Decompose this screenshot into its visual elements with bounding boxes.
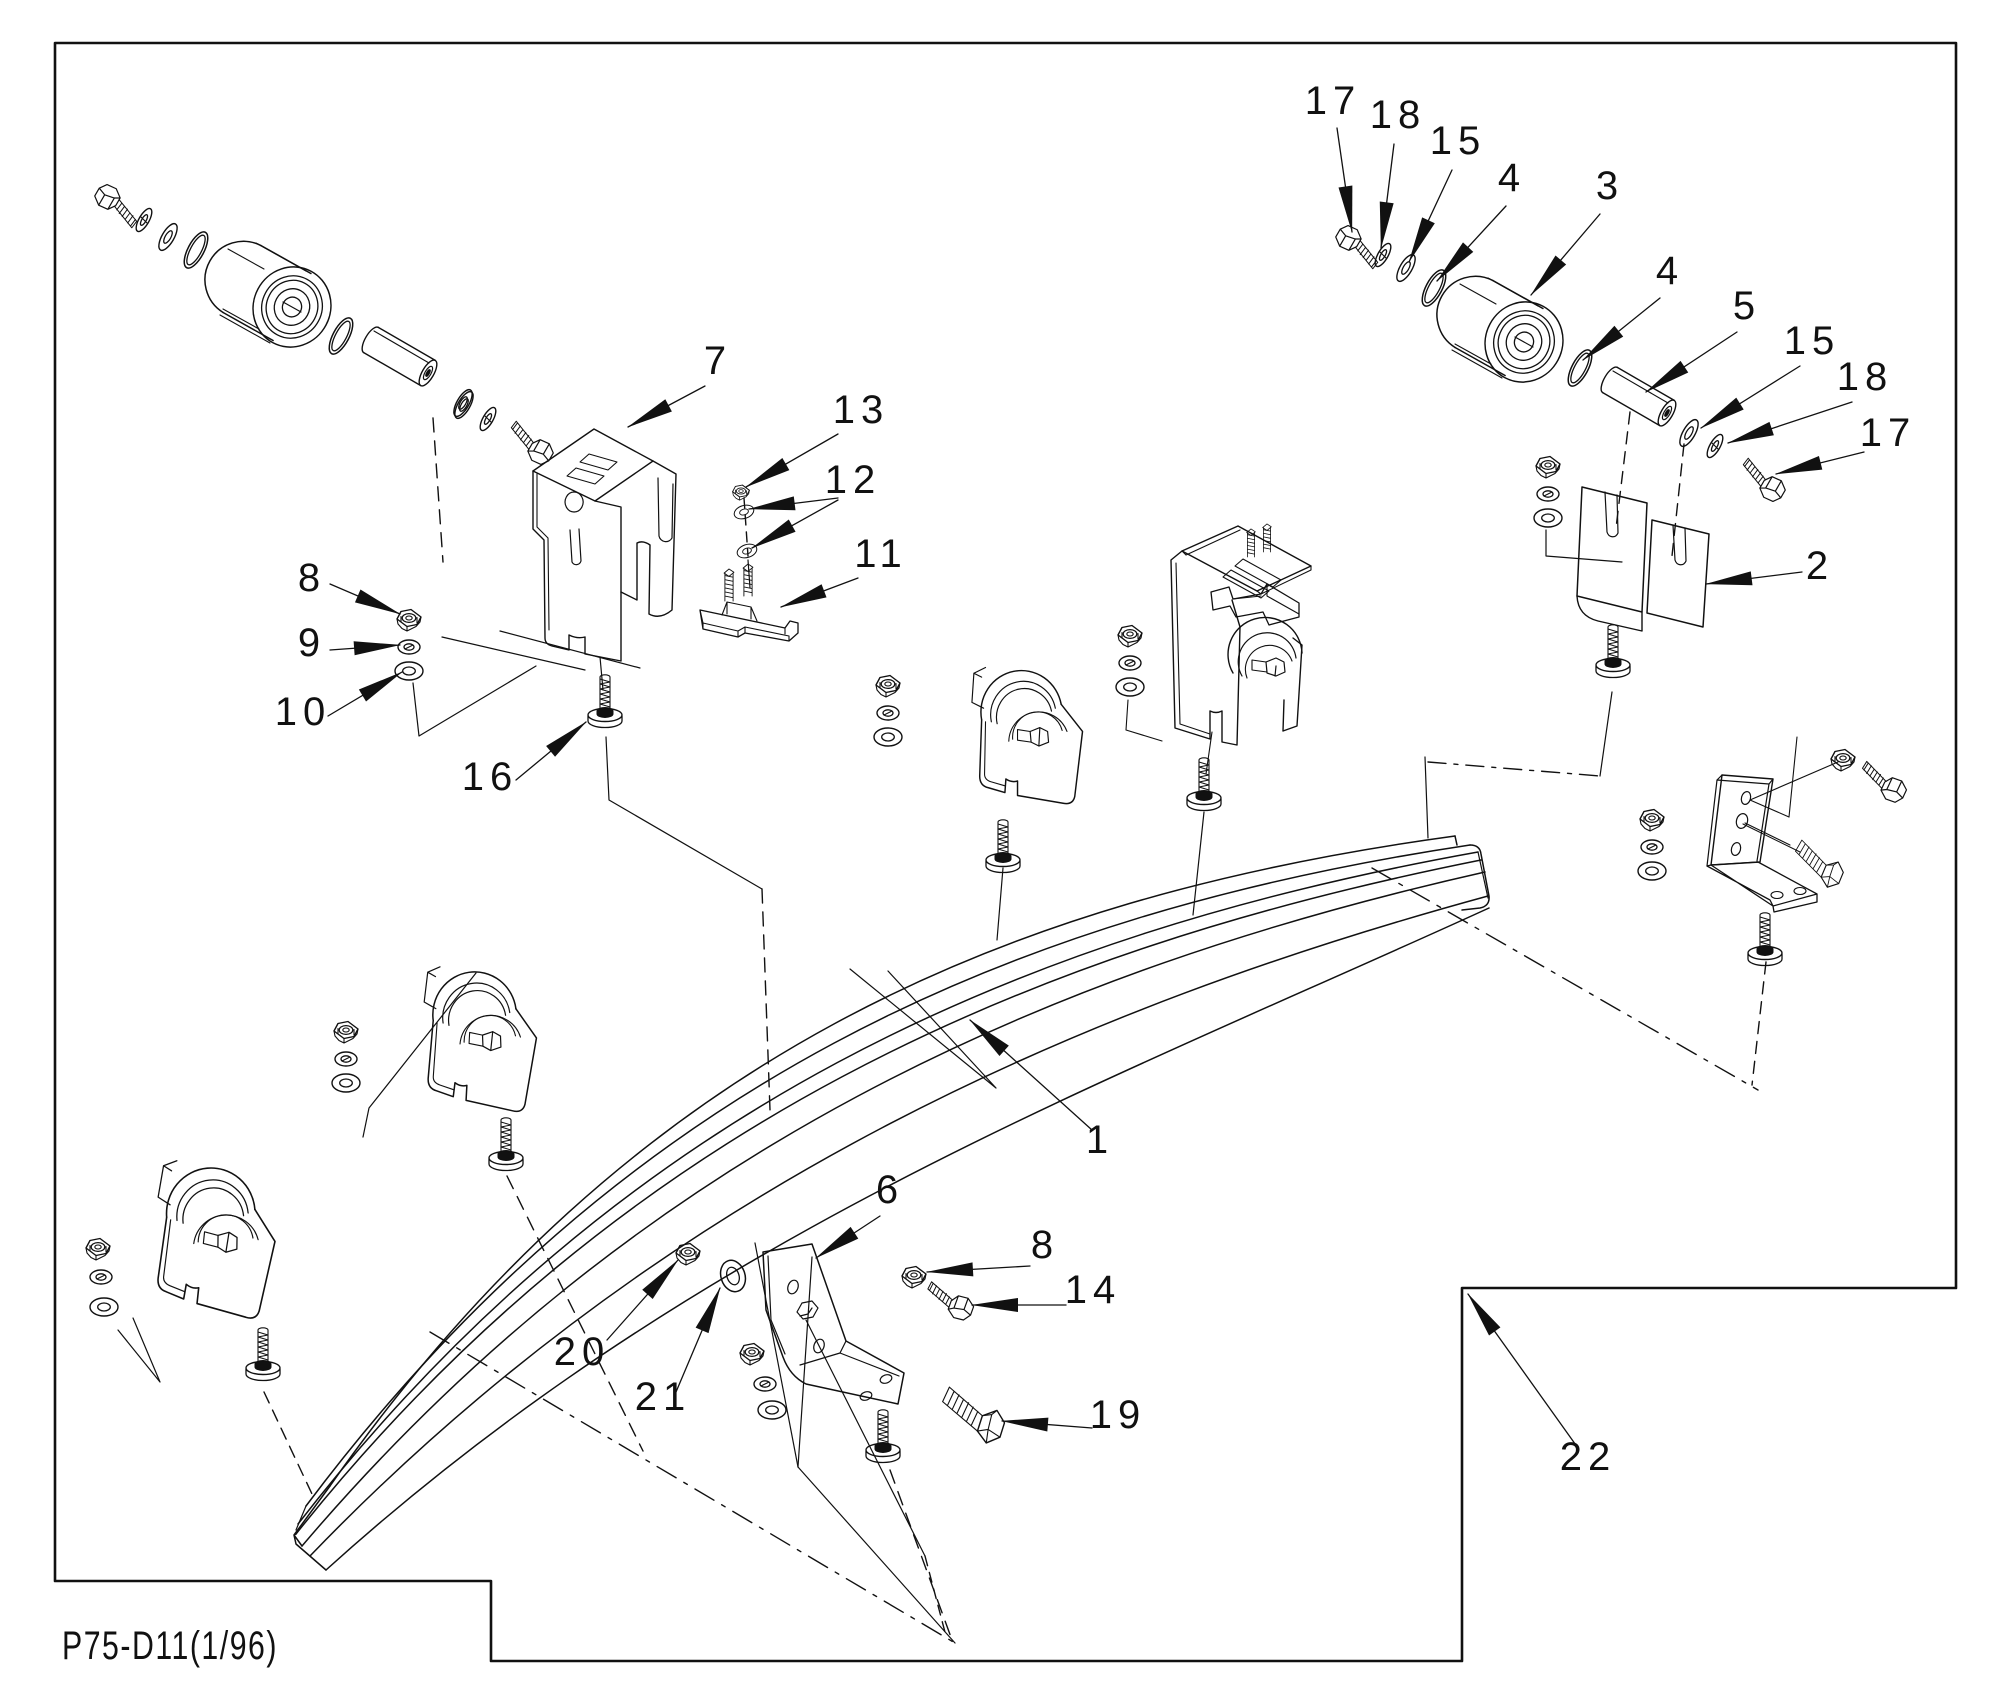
svg-text:20: 20 [554, 1330, 611, 1374]
svg-text:5: 5 [1733, 284, 1761, 328]
svg-text:9: 9 [298, 621, 326, 665]
svg-text:18: 18 [1370, 93, 1427, 137]
svg-text:10: 10 [275, 690, 332, 734]
svg-text:17: 17 [1305, 79, 1362, 123]
svg-text:13: 13 [833, 388, 890, 432]
svg-text:4: 4 [1656, 249, 1684, 293]
svg-text:12: 12 [825, 458, 882, 502]
svg-text:4: 4 [1498, 156, 1526, 200]
svg-text:15: 15 [1784, 319, 1841, 363]
svg-text:15: 15 [1430, 119, 1487, 163]
svg-text:3: 3 [1596, 164, 1624, 208]
svg-text:1: 1 [1086, 1118, 1114, 1162]
svg-text:7: 7 [704, 339, 732, 383]
svg-text:18: 18 [1837, 355, 1894, 399]
svg-text:P75-D11(1/96): P75-D11(1/96) [62, 1624, 278, 1668]
svg-text:2: 2 [1806, 544, 1834, 588]
svg-text:19: 19 [1090, 1393, 1147, 1437]
svg-text:17: 17 [1860, 411, 1917, 455]
svg-text:8: 8 [298, 556, 326, 600]
svg-text:6: 6 [876, 1168, 904, 1212]
svg-text:14: 14 [1065, 1268, 1122, 1312]
svg-text:21: 21 [635, 1375, 692, 1419]
svg-text:11: 11 [854, 532, 908, 576]
svg-text:22: 22 [1560, 1435, 1617, 1479]
svg-text:16: 16 [462, 755, 519, 799]
svg-text:8: 8 [1031, 1223, 1059, 1267]
